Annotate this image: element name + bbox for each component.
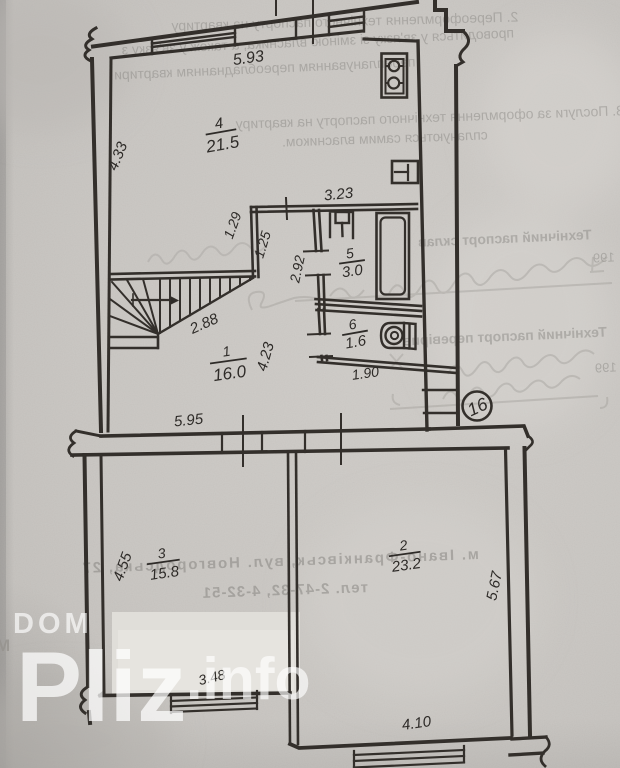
svg-text:199: 199 (595, 359, 617, 375)
svg-text:3.23: 3.23 (323, 184, 354, 204)
svg-text:M: M (0, 636, 10, 655)
svg-text:5.95: 5.95 (173, 410, 204, 430)
svg-text:3.0: 3.0 (341, 261, 365, 281)
svg-text:199: 199 (593, 249, 615, 265)
svg-text:Pliz: Pliz (16, 631, 187, 742)
svg-text:.info: .info (186, 646, 311, 712)
